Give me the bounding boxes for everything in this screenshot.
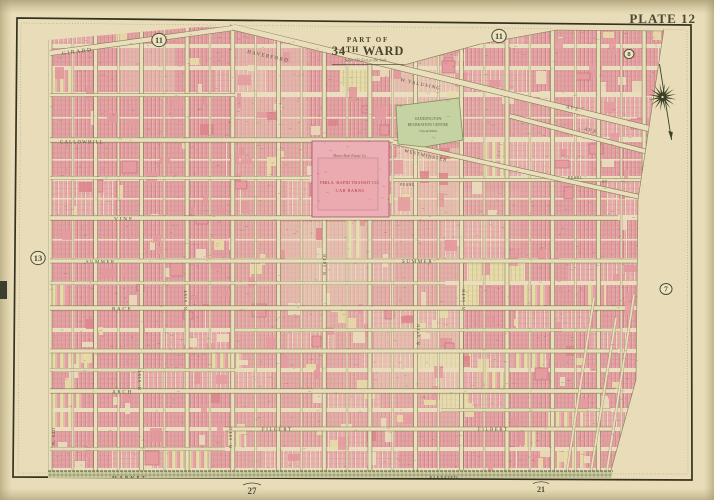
svg-text:13: 13 (34, 253, 43, 263)
svg-text:PLATE 12: PLATE 12 (629, 11, 696, 26)
svg-text:PART OF: PART OF (347, 36, 389, 44)
svg-text:34TH WARD: 34TH WARD (332, 44, 404, 58)
svg-text:11: 11 (495, 31, 503, 41)
svg-text:27: 27 (248, 486, 258, 496)
svg-text:7: 7 (664, 285, 668, 294)
svg-text:11: 11 (155, 35, 163, 45)
svg-text:21: 21 (537, 485, 545, 494)
svg-text:Scale 150 Feet to the Inch.: Scale 150 Feet to the Inch. (345, 58, 388, 63)
